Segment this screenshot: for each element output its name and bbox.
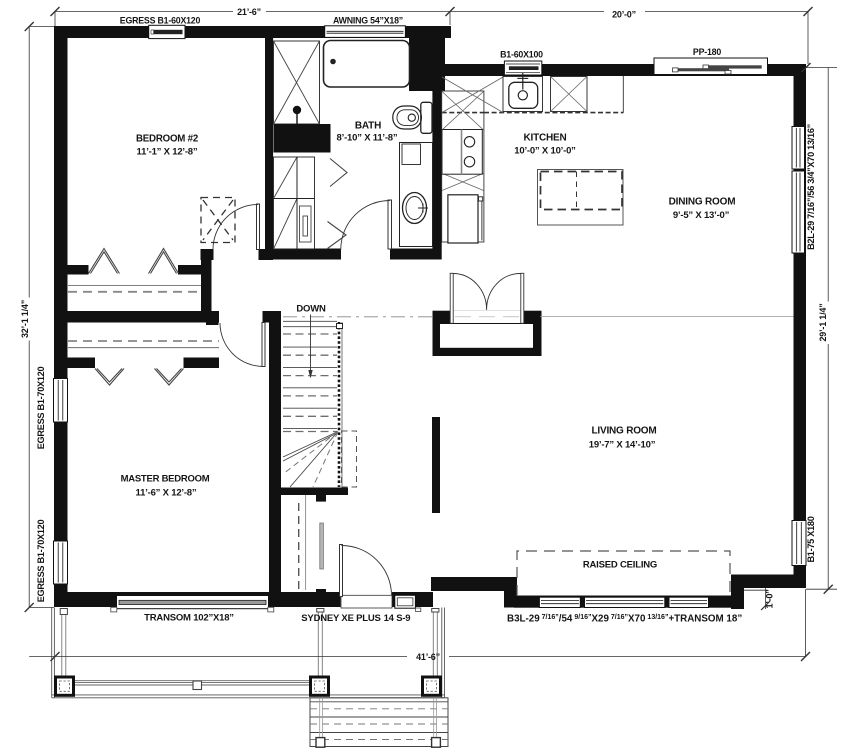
svg-text:1’-0”: 1’-0” — [765, 590, 775, 609]
svg-text:MASTER BEDROOM: MASTER BEDROOM — [121, 474, 210, 485]
svg-text:DINING ROOM: DINING ROOM — [669, 197, 736, 208]
svg-text:KITCHEN: KITCHEN — [523, 133, 566, 144]
svg-text:20’-0”: 20’-0” — [612, 10, 636, 20]
svg-text:41’-6”: 41’-6” — [416, 652, 440, 662]
svg-text:TRANSOM 102”X18”: TRANSOM 102”X18” — [144, 613, 234, 624]
svg-text:BEDROOM #2: BEDROOM #2 — [136, 134, 198, 145]
svg-text:19’-7” X 14’-10”: 19’-7” X 14’-10” — [589, 440, 656, 451]
svg-text:8’-10” X 11’-8”: 8’-10” X 11’-8” — [337, 133, 398, 144]
svg-text:32’-1 1/4”: 32’-1 1/4” — [20, 300, 30, 338]
svg-text:B2L-29 7/16”/56 3/4”X70 13/16”: B2L-29 7/16”/56 3/4”X70 13/16” — [806, 124, 816, 250]
svg-text:LIVING ROOM: LIVING ROOM — [591, 426, 656, 437]
svg-text:B1-60X100: B1-60X100 — [500, 50, 543, 60]
svg-text:RAISED CEILING: RAISED CEILING — [583, 560, 657, 571]
svg-text:PP-180: PP-180 — [693, 47, 721, 57]
svg-text:10’-0” X 10’-0”: 10’-0” X 10’-0” — [514, 146, 576, 157]
svg-text:EGRESS B1-60X120: EGRESS B1-60X120 — [120, 16, 201, 26]
svg-text:SYDNEY XE PLUS: SYDNEY XE PLUS — [301, 613, 380, 624]
svg-text:29’-1 1/4”: 29’-1 1/4” — [818, 303, 828, 341]
svg-text:B1-75 X180: B1-75 X180 — [806, 516, 816, 562]
svg-text:14 S-9: 14 S-9 — [384, 613, 411, 624]
svg-text:BATH: BATH — [355, 121, 381, 132]
svg-text:AWNING 54”X18”: AWNING 54”X18” — [333, 16, 403, 26]
svg-text:21’-6”: 21’-6” — [237, 7, 261, 17]
svg-text:EGRESS B1-70X120: EGRESS B1-70X120 — [36, 367, 46, 450]
svg-text:11’-6” X 12’-8”: 11’-6” X 12’-8” — [136, 488, 197, 499]
svg-text:9’-5” X 13’-0”: 9’-5” X 13’-0” — [673, 210, 730, 221]
svg-text:11’-1” X 12’-8”: 11’-1” X 12’-8” — [137, 147, 198, 158]
svg-text:EGRESS B1-70X120: EGRESS B1-70X120 — [36, 520, 46, 603]
svg-text:DOWN: DOWN — [296, 304, 326, 315]
